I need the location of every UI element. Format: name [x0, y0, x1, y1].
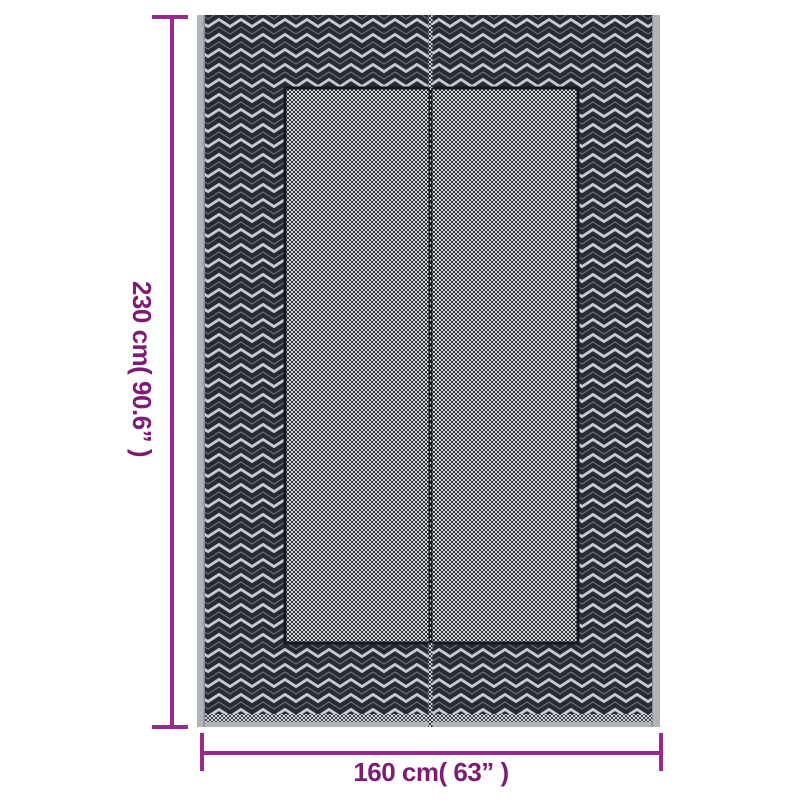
rug-product-photo [197, 15, 660, 727]
height-dimension-bottom-cap [152, 725, 188, 729]
width-dimension-label: 160 cm( 63” ) [353, 759, 508, 785]
height-dimension-line [170, 17, 174, 725]
height-dimension-top-cap [152, 15, 188, 19]
width-dimension-left-cap [200, 733, 204, 771]
width-dimension-line [202, 751, 661, 755]
width-dimension-right-cap [659, 733, 663, 771]
product-image-canvas: 230 cm( 90.6” ) 160 cm( 63” ) [0, 0, 800, 800]
rug-left-edge-line [204, 15, 206, 727]
height-dimension-label: 230 cm( 90.6” ) [129, 281, 155, 457]
